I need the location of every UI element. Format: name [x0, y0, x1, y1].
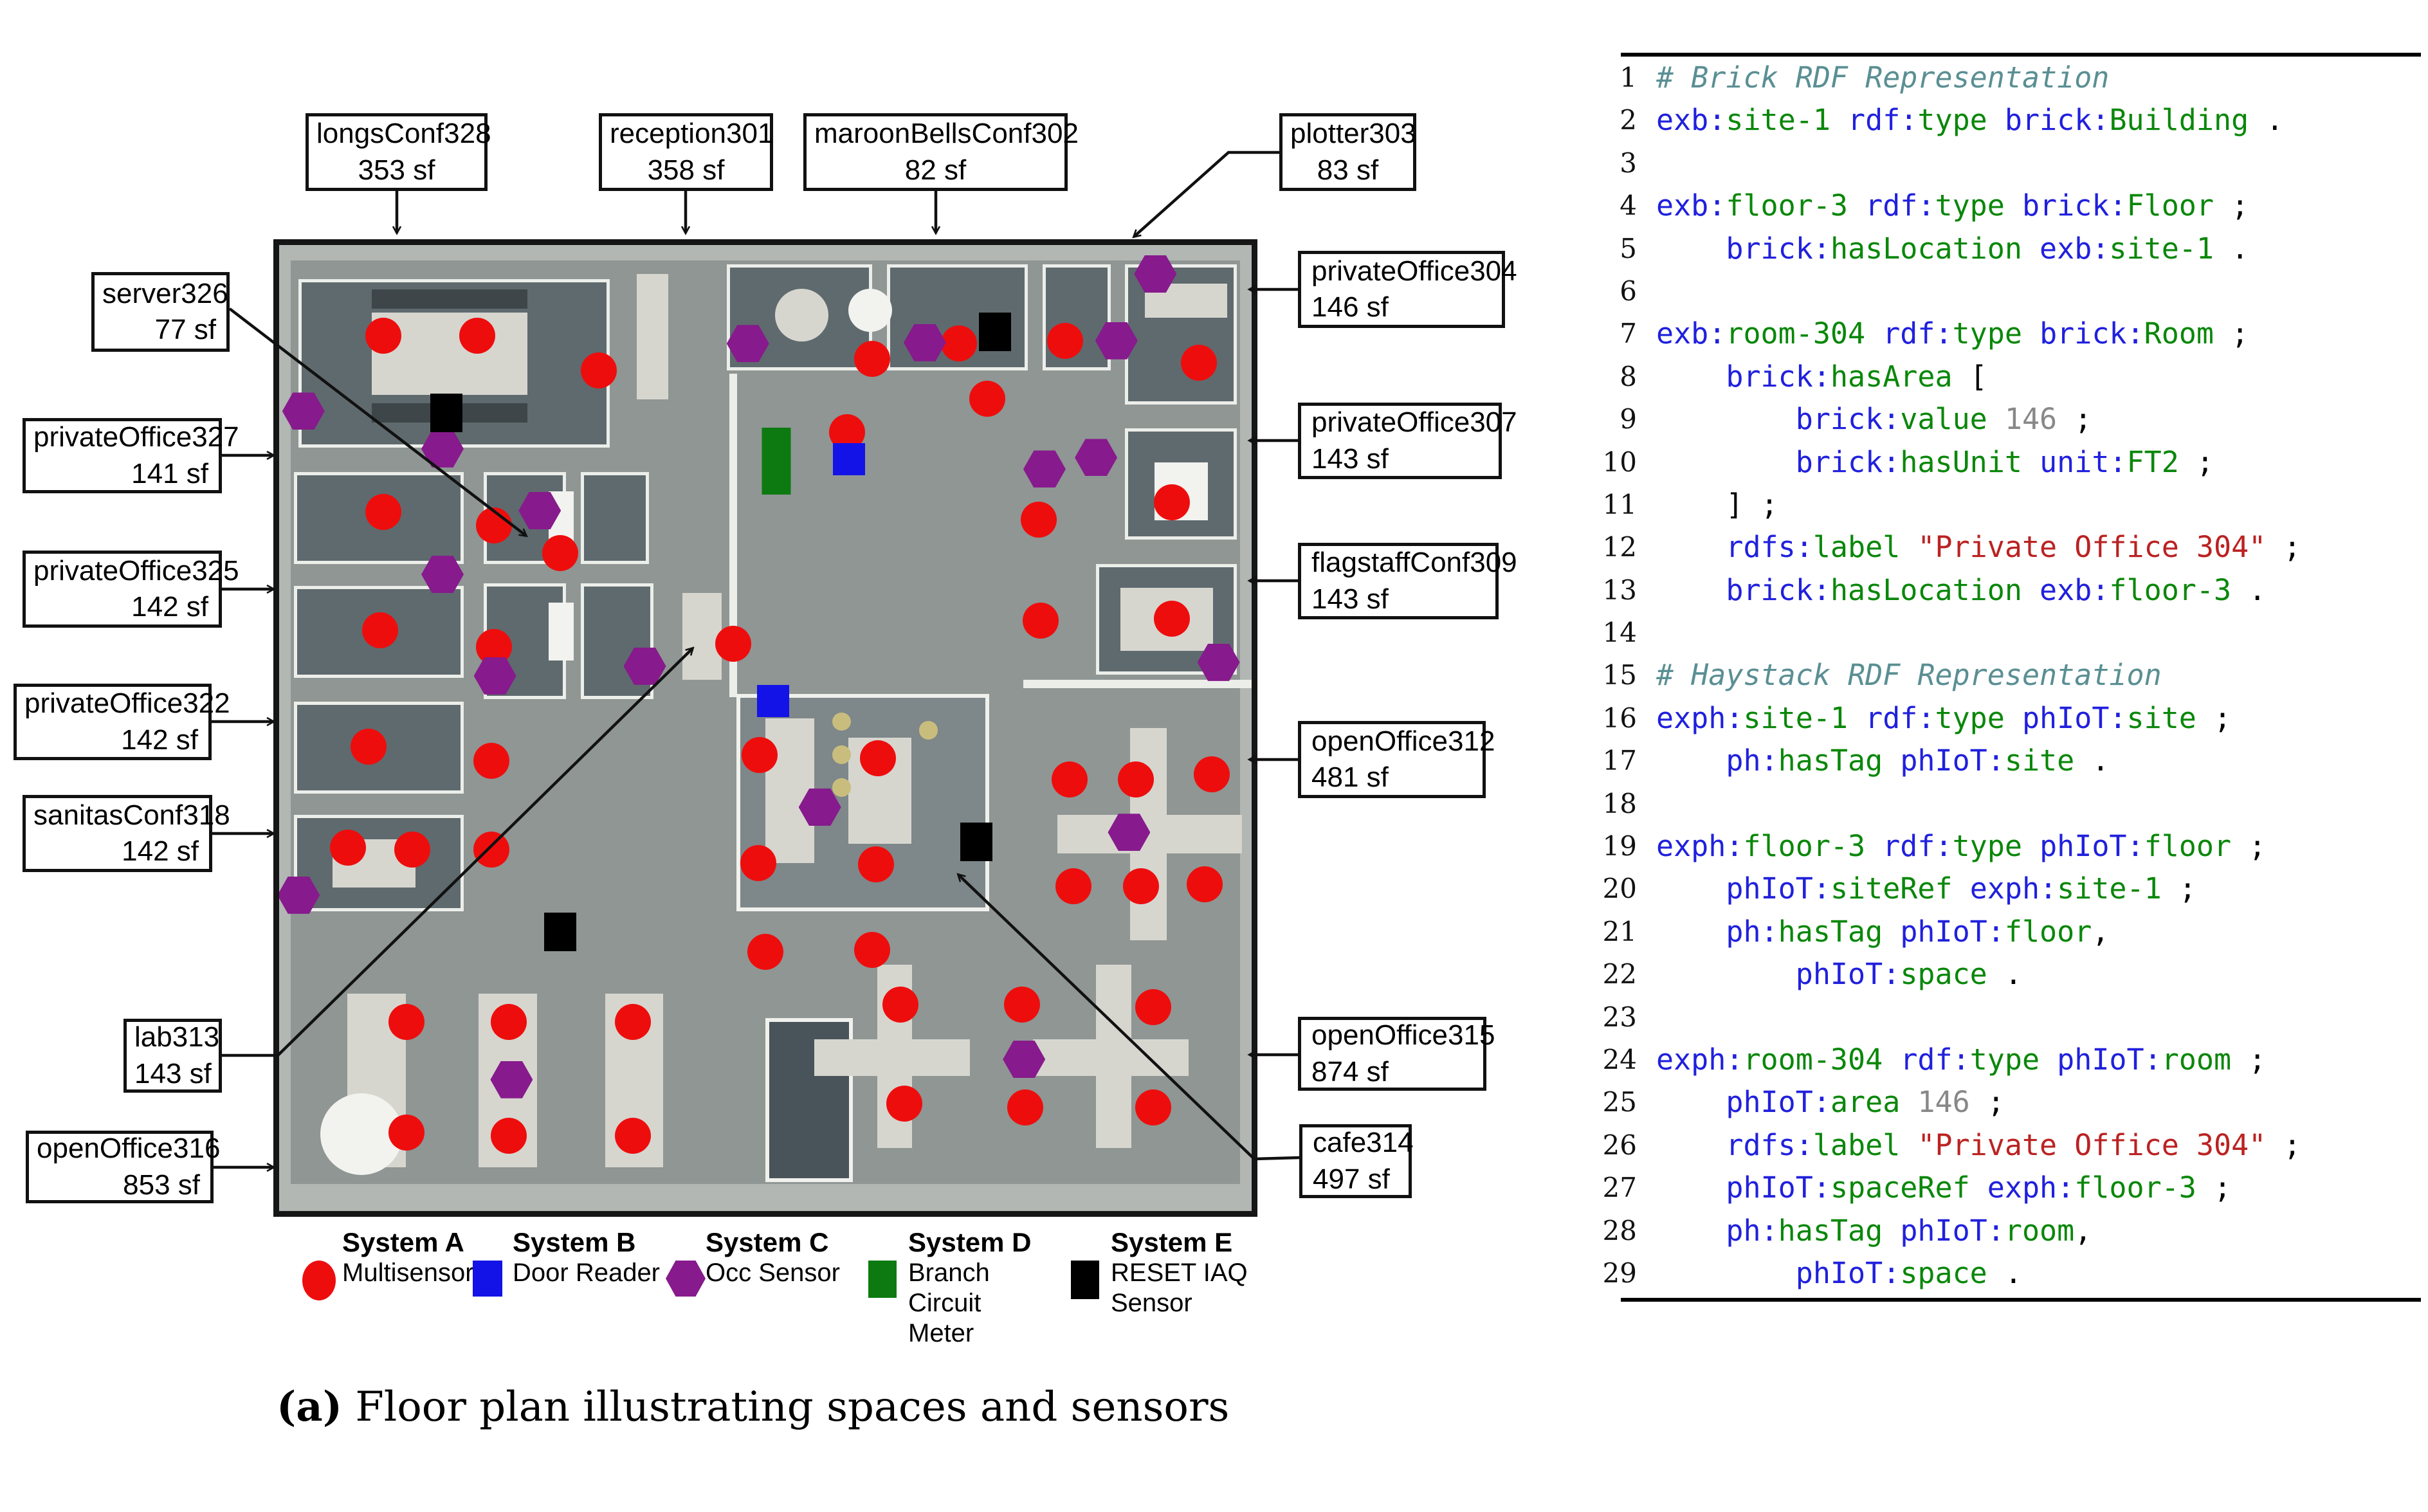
code-token: brick: — [2040, 316, 2144, 351]
room-label-line: 142 sf — [24, 722, 198, 758]
legend-label: Branch — [908, 1258, 1031, 1288]
code-token — [1883, 915, 1900, 949]
code-token: phIoT: — [1900, 915, 2005, 949]
code-line: # Brick RDF Representation — [1656, 57, 2428, 99]
furniture — [814, 1039, 970, 1076]
code-token — [1848, 701, 1865, 735]
legend-system-name: System B — [513, 1227, 660, 1258]
furniture — [848, 289, 892, 332]
code-token: ; — [2266, 530, 2301, 564]
multisensor-marker — [542, 535, 578, 571]
furniture — [682, 593, 721, 680]
room-label-flagstaffConf309: flagstaffConf309143 sf — [1298, 543, 1499, 619]
code-line: exph:room-304 rdf:type phIoT:room ; — [1656, 1039, 2428, 1081]
multisensor-marker — [491, 1004, 527, 1040]
code-token: brick: — [2022, 188, 2127, 223]
code-line: rdfs:label "Private Office 304" ; — [1656, 526, 2428, 569]
code-token — [1656, 915, 1726, 949]
multisensor-marker — [1118, 761, 1154, 797]
room-area — [1043, 264, 1111, 370]
code-token: . — [1987, 957, 2022, 991]
code-token: . — [2231, 573, 2266, 607]
code-token: area — [1830, 1085, 1900, 1119]
code-token: Building — [2109, 103, 2249, 137]
code-line: phIoT:space . — [1656, 1252, 2428, 1295]
line-number: 20 — [1579, 868, 1637, 910]
code-token: room-304 — [1726, 316, 1865, 351]
code-line: # Haystack RDF Representation — [1656, 654, 2428, 697]
code-token: rdf: — [1883, 829, 1952, 863]
code-token: hasUnit — [1900, 445, 2022, 479]
code-token: type — [1917, 103, 1987, 137]
code-token: "Private Office 304" — [1917, 1128, 2266, 1162]
multisensor-marker — [615, 1118, 651, 1154]
code-token: phIoT: — [1900, 1214, 2005, 1248]
code-token: phIoT: — [1900, 743, 2005, 778]
code-token: type — [1970, 1043, 2040, 1077]
code-token: floor — [2005, 915, 2092, 949]
legend-label: Meter — [908, 1318, 1031, 1349]
code-token: rdf: — [1865, 701, 1935, 735]
multisensor-marker — [1007, 1089, 1043, 1125]
code-token: brick: — [1726, 573, 1830, 607]
legend-system-name: System A — [342, 1227, 474, 1258]
multisensor-marker — [941, 325, 977, 361]
code-token: type — [1953, 829, 2022, 863]
code-token: exb: — [2040, 573, 2109, 607]
code-token — [2005, 701, 2022, 735]
room-label-line: maroonBellsConf302 — [814, 116, 1057, 152]
legend-item-system-d: System DBranchCircuitMeter — [868, 1227, 1031, 1349]
code-token: phIoT: — [1726, 871, 1830, 906]
code-line: phIoT:area 146 ; — [1656, 1081, 2428, 1124]
room-label-lab313: lab313143 sf — [123, 1019, 222, 1093]
code-token: space — [1900, 1256, 1987, 1290]
line-number: 28 — [1579, 1210, 1637, 1252]
code-line: phIoT:siteRef exph:site-1 ; — [1656, 868, 2428, 910]
code-token: ] ; — [1656, 487, 1778, 522]
code-token — [2022, 573, 2040, 607]
legend-item-system-e: System ERESET IAQSensor — [1071, 1227, 1248, 1318]
code-token: site-1 — [1743, 701, 1848, 735]
room-label-plotter303: plotter30383 sf — [1279, 113, 1416, 191]
code-token: rdfs: — [1726, 530, 1812, 564]
code-token: [ — [1953, 360, 1987, 394]
code-token: rdf: — [1865, 188, 1935, 223]
code-token: exph: — [1656, 829, 1743, 863]
multisensor-marker — [362, 612, 398, 648]
code-token: ph: — [1726, 1214, 1778, 1248]
code-token: unit: — [2040, 445, 2126, 479]
code-token: hasLocation — [1830, 232, 2022, 266]
code-token: value — [1900, 402, 1987, 436]
code-token: brick: — [1796, 445, 1901, 479]
room-label-cafe314: cafe314497 sf — [1299, 1124, 1412, 1198]
code-line: brick:hasLocation exb:site-1 . — [1656, 228, 2428, 270]
code-token: floor-3 — [1726, 188, 1848, 223]
code-token: space — [1900, 957, 1987, 991]
code-token: "Private Office 304" — [1917, 530, 2266, 564]
room-label-line: reception301 — [610, 116, 762, 152]
door-reader-marker — [833, 443, 865, 475]
line-number: 25 — [1579, 1081, 1637, 1124]
legend-label: RESET IAQ — [1111, 1258, 1248, 1288]
line-number: 10 — [1579, 441, 1637, 484]
code-token — [1883, 1043, 1900, 1077]
multisensor-marker — [615, 1004, 651, 1040]
code-token: exph: — [1656, 701, 1743, 735]
code-token: spaceRef — [1830, 1170, 1970, 1205]
code-token — [2040, 1043, 2057, 1077]
code-line: ph:hasTag phIoT:site . — [1656, 740, 2428, 782]
line-number: 29 — [1579, 1252, 1637, 1295]
code-line: exb:site-1 rdf:type brick:Building . — [1656, 99, 2428, 141]
room-label-privateOffice325: privateOffice325142 sf — [23, 551, 222, 628]
occ-sensor-marker — [1075, 439, 1117, 476]
code-token: exph: — [1970, 871, 2057, 906]
reset-iaq-sensor-marker — [979, 313, 1011, 351]
code-token: 146 — [2005, 402, 2057, 436]
room-label-line: 82 sf — [814, 152, 1057, 188]
code-token — [1656, 1170, 1726, 1205]
code-token: hasArea — [1830, 360, 1953, 394]
code-token: ph: — [1726, 915, 1778, 949]
line-number: 26 — [1579, 1124, 1637, 1167]
code-token — [1987, 402, 2005, 436]
code-token: ph: — [1726, 743, 1778, 778]
code-token: exph: — [1656, 1043, 1743, 1077]
code-token: ; — [1970, 1085, 2005, 1119]
code-token: , — [2092, 915, 2109, 949]
line-number: 23 — [1579, 996, 1637, 1039]
room-label-line: privateOffice322 — [24, 686, 198, 722]
line-number: 12 — [1579, 526, 1637, 569]
room-label-line: 143 sf — [134, 1056, 211, 1092]
legend-system-name: System E — [1111, 1227, 1248, 1258]
code-token: phIoT: — [2040, 829, 2144, 863]
room-label-privateOffice322: privateOffice322142 sf — [14, 684, 212, 760]
code-token: hasTag — [1778, 1214, 1883, 1248]
line-number: 22 — [1579, 953, 1637, 996]
multisensor-marker — [473, 743, 509, 779]
line-number: 8 — [1579, 356, 1637, 398]
code-token: # Haystack RDF Representation — [1656, 658, 2162, 692]
code-token — [1656, 871, 1726, 906]
multisensor-marker — [882, 987, 918, 1023]
code-token: site — [2005, 743, 2074, 778]
furniture — [832, 778, 851, 797]
code-token — [2022, 445, 2040, 479]
code-token: label — [1813, 1128, 1900, 1162]
code-token: ; — [2057, 402, 2092, 436]
code-token: Floor — [2127, 188, 2214, 223]
code-token: floor — [2144, 829, 2231, 863]
code-token: siteRef — [1830, 871, 1953, 906]
floor-plan — [273, 239, 1257, 1217]
room-label-openOffice312: openOffice312481 sf — [1298, 721, 1486, 798]
room-label-line: 481 sf — [1311, 760, 1475, 796]
code-token: site-1 — [1726, 103, 1830, 137]
multisensor-marker — [1181, 345, 1217, 381]
room-label-line: 358 sf — [610, 152, 762, 188]
multisensor-marker — [1154, 484, 1190, 520]
furniture — [832, 745, 851, 764]
caption-a: (a) Floor plan illustrating spaces and s… — [277, 1383, 1229, 1431]
code-token: type — [1935, 701, 2005, 735]
room-area — [279, 1184, 1252, 1211]
listing-bottom-rule — [1621, 1298, 2421, 1302]
code-token: floor-3 — [1743, 829, 1865, 863]
line-number: 17 — [1579, 740, 1637, 782]
code-token — [2022, 829, 2040, 863]
square-legend-icon — [473, 1261, 502, 1297]
multisensor-marker — [388, 1115, 424, 1151]
room-label-line: 141 sf — [33, 456, 208, 492]
furniture — [775, 289, 828, 342]
code-token: rdf: — [1900, 1043, 1969, 1077]
code-token: ; — [2196, 701, 2231, 735]
legend-system-name: System C — [706, 1227, 840, 1258]
code-token: ; — [2196, 1170, 2231, 1205]
code-token — [1656, 232, 1726, 266]
room-label-line: longsConf328 — [316, 116, 477, 152]
multisensor-marker — [581, 352, 617, 388]
code-token: label — [1813, 530, 1900, 564]
code-token: brick: — [1726, 360, 1830, 394]
code-token: exb: — [1656, 316, 1726, 351]
legend-label: Multisensor — [342, 1258, 474, 1288]
code-token — [1987, 103, 2005, 137]
line-number: 19 — [1579, 825, 1637, 868]
room-label-line: privateOffice304 — [1311, 253, 1494, 289]
room-label-server326: server32677 sf — [91, 272, 230, 352]
multisensor-marker — [747, 934, 783, 970]
room-label-line: privateOffice325 — [33, 553, 208, 589]
square-legend-icon — [1071, 1261, 1099, 1299]
code-token — [1848, 188, 1865, 223]
room-label-line: 83 sf — [1290, 152, 1405, 188]
line-number: 1 — [1579, 57, 1637, 99]
line-number: 21 — [1579, 911, 1637, 953]
line-number: 16 — [1579, 697, 1637, 740]
code-token — [1656, 1256, 1796, 1290]
leader-plotter303 — [1134, 152, 1279, 237]
room-label-line: 874 sf — [1311, 1054, 1475, 1090]
room-label-privateOffice327: privateOffice327141 sf — [23, 418, 222, 493]
line-number: 24 — [1579, 1039, 1637, 1081]
code-token — [1656, 1085, 1726, 1119]
room-area — [1240, 245, 1252, 1211]
code-token: type — [1953, 316, 2022, 351]
code-line: rdfs:label "Private Office 304" ; — [1656, 1124, 2428, 1167]
code-token: phIoT: — [1726, 1170, 1830, 1205]
code-token: phIoT: — [2022, 701, 2127, 735]
code-token: brick: — [2005, 103, 2110, 137]
furniture — [372, 289, 527, 309]
code-token — [1656, 957, 1796, 991]
room-label-line: lab313 — [134, 1019, 211, 1055]
multisensor-marker — [1194, 756, 1230, 792]
code-token — [1656, 445, 1796, 479]
multisensor-marker — [459, 318, 495, 354]
room-label-line: cafe314 — [1313, 1125, 1401, 1161]
code-token: brick: — [1726, 232, 1830, 266]
line-number: 5 — [1579, 228, 1637, 270]
room-label-line: 142 sf — [33, 589, 208, 625]
room-label-line: openOffice312 — [1311, 724, 1475, 760]
code-token: rdf: — [1848, 103, 1917, 137]
code-token — [1865, 829, 1883, 863]
furniture — [1057, 815, 1242, 853]
room-label-line: plotter303 — [1290, 116, 1405, 152]
code-token: brick: — [1796, 402, 1901, 436]
code-listing-figure: 1234567891011121314151617181920212223242… — [1595, 0, 2428, 1512]
multisensor-marker — [1021, 502, 1057, 538]
code-token: ; — [2214, 316, 2249, 351]
sensor-legend: System AMultisensorSystem BDoor ReaderSy… — [273, 1227, 1367, 1369]
code-token: # Brick RDF Representation — [1656, 60, 2109, 95]
line-number: 13 — [1579, 569, 1637, 612]
room-area — [279, 245, 291, 1211]
code-token: phIoT: — [1796, 1256, 1901, 1290]
code-line: exph:floor-3 rdf:type phIoT:floor ; — [1656, 825, 2428, 868]
multisensor-marker — [858, 846, 894, 882]
line-number: 6 — [1579, 270, 1637, 313]
furniture — [919, 721, 938, 740]
room-label-line: 143 sf — [1311, 441, 1491, 477]
code-line — [1656, 612, 2428, 654]
code-token: 146 — [1917, 1085, 1969, 1119]
legend-label: Circuit — [908, 1288, 1031, 1318]
room-label-line: flagstaffConf309 — [1311, 545, 1488, 581]
room-label-privateOffice307: privateOffice307143 sf — [1298, 403, 1502, 479]
code-token: hasLocation — [1830, 573, 2022, 607]
room-label-sanitasConf318: sanitasConf318142 sf — [23, 795, 212, 872]
code-token: rdfs: — [1726, 1128, 1812, 1162]
code-token: phIoT: — [1796, 957, 1901, 991]
room-label-openOffice316: openOffice316853 sf — [26, 1131, 214, 1203]
code-token: Room — [2144, 316, 2214, 351]
code-token — [1656, 1214, 1726, 1248]
code-line — [1656, 270, 2428, 313]
room-area — [581, 472, 649, 564]
multisensor-marker — [715, 626, 751, 662]
multisensor-marker — [476, 507, 512, 543]
multisensor-marker — [330, 830, 366, 866]
code-token: exb: — [1656, 188, 1726, 223]
caption-a-text: Floor plan illustrating spaces and senso… — [342, 1383, 1229, 1431]
room-label-line: 146 sf — [1311, 289, 1494, 325]
code-line: brick:hasLocation exb:floor-3 . — [1656, 569, 2428, 612]
room-label-privateOffice304: privateOffice304146 sf — [1298, 251, 1505, 328]
room-area — [279, 245, 1252, 260]
code-token: site-1 — [2109, 232, 2214, 266]
code-token — [1900, 1128, 1917, 1162]
code-token — [1656, 573, 1726, 607]
code-token: rdf: — [1883, 316, 1952, 351]
legend-label: Occ Sensor — [706, 1258, 840, 1288]
code-line: phIoT:space . — [1656, 953, 2428, 996]
line-number: 15 — [1579, 654, 1637, 697]
code-token: . — [2214, 232, 2249, 266]
room-label-reception301: reception301358 sf — [599, 113, 773, 191]
legend-label: Sensor — [1111, 1288, 1248, 1318]
code-token: ; — [2266, 1128, 2301, 1162]
code-token: exb: — [1656, 103, 1726, 137]
branch-circuit-meter-marker — [762, 459, 790, 495]
code-token: room — [2162, 1043, 2231, 1077]
multisensor-marker — [1052, 761, 1088, 797]
reset-iaq-sensor-marker — [960, 823, 992, 861]
code-token: type — [1935, 188, 2005, 223]
door-reader-marker — [757, 685, 789, 717]
line-number: 18 — [1579, 783, 1637, 825]
code-line — [1656, 783, 2428, 825]
room-label-line: sanitasConf318 — [33, 797, 199, 833]
line-number: 4 — [1579, 185, 1637, 227]
multisensor-marker — [365, 494, 401, 530]
multisensor-marker — [351, 729, 387, 765]
room-label-longsConf328: longsConf328353 sf — [306, 113, 488, 191]
code-line: exb:floor-3 rdf:type brick:Floor ; — [1656, 185, 2428, 227]
multisensor-marker — [740, 845, 776, 881]
code-token: . — [2074, 743, 2109, 778]
multisensor-marker — [969, 381, 1005, 417]
line-number: 3 — [1579, 142, 1637, 185]
code-token — [1953, 871, 1970, 906]
code-token: room — [2005, 1214, 2074, 1248]
room-label-line: openOffice316 — [37, 1131, 200, 1167]
room-label-line: 142 sf — [33, 833, 199, 870]
code-token — [1865, 316, 1883, 351]
multisensor-marker — [886, 1086, 922, 1122]
furniture — [637, 274, 668, 399]
code-token: ; — [2162, 871, 2196, 906]
code-token — [1656, 402, 1796, 436]
occ-sensor-marker — [1023, 450, 1066, 487]
line-number: 9 — [1579, 398, 1637, 441]
legend-item-system-b: System BDoor Reader — [473, 1227, 660, 1288]
code-line: ph:hasTag phIoT:room, — [1656, 1210, 2428, 1252]
code-token: ; — [2214, 188, 2249, 223]
code-line — [1656, 142, 2428, 185]
multisensor-marker — [1055, 868, 1091, 904]
room-label-line: 853 sf — [37, 1167, 200, 1203]
line-number: 7 — [1579, 313, 1637, 355]
multisensor-marker — [1154, 601, 1190, 637]
multisensor-marker — [1023, 603, 1059, 639]
code-token — [1656, 1128, 1726, 1162]
code-token — [2005, 188, 2022, 223]
code-line: phIoT:spaceRef exph:floor-3 ; — [1656, 1167, 2428, 1209]
code-token — [1883, 1214, 1900, 1248]
multisensor-marker — [1004, 987, 1040, 1023]
square-legend-icon — [868, 1261, 897, 1298]
code-token — [1970, 1170, 1987, 1205]
caption-a-tag: (a) — [277, 1383, 342, 1431]
code-line: exb:room-304 rdf:type brick:Room ; — [1656, 313, 2428, 355]
room-label-line: 353 sf — [316, 152, 477, 188]
line-number: 14 — [1579, 612, 1637, 654]
circle-legend-icon — [302, 1261, 336, 1300]
room-label-maroonBellsConf302: maroonBellsConf30282 sf — [803, 113, 1068, 191]
multisensor-marker — [1187, 866, 1223, 902]
multisensor-marker — [491, 1118, 527, 1154]
code-token: floor-3 — [2109, 573, 2231, 607]
code-token — [1900, 530, 1917, 564]
code-token: site-1 — [2057, 871, 2162, 906]
code-line: exph:site-1 rdf:type phIoT:site ; — [1656, 697, 2428, 740]
